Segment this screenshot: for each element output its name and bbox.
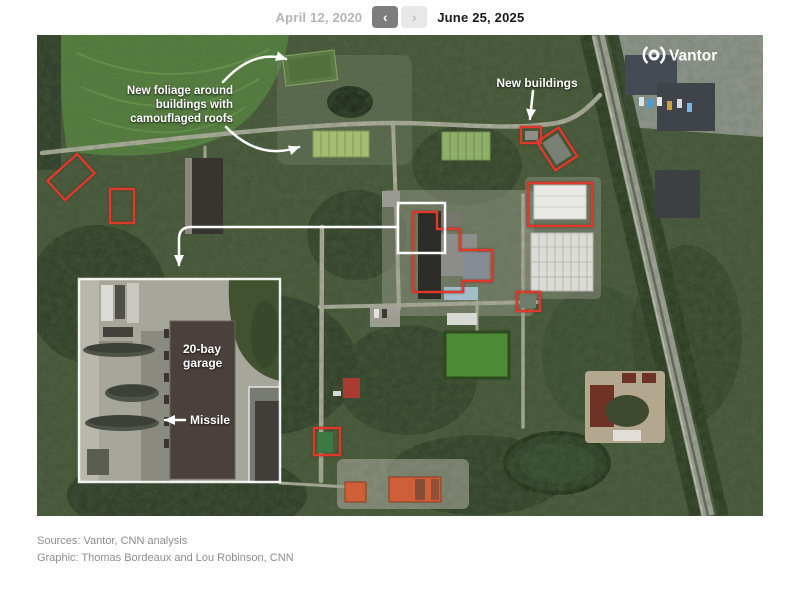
vantor-brand-text: Vantor	[669, 48, 717, 65]
satellite-map-svg: New foliage around buildings with camouf…	[37, 35, 763, 516]
date-toggle-header: April 12, 2020 ‹ › June 25, 2025	[0, 0, 800, 34]
graphic-credit-line: Graphic: Thomas Bordeaux and Lou Robinso…	[37, 550, 294, 567]
foliage-label-line1: New foliage around	[127, 85, 233, 97]
garage-label-line2: garage	[183, 356, 223, 370]
new-buildings-label: New buildings	[496, 76, 578, 90]
date-after-label: June 25, 2025	[437, 10, 524, 25]
date-before-label: April 12, 2020	[276, 10, 363, 25]
chevron-left-icon: ‹	[383, 9, 388, 25]
sources-line: Sources: Vantor, CNN analysis	[37, 533, 294, 550]
foliage-label-line3: camouflaged roofs	[130, 113, 233, 125]
prev-date-button[interactable]: ‹	[372, 6, 398, 28]
footer-credits: Sources: Vantor, CNN analysis Graphic: T…	[37, 533, 294, 567]
chevron-right-icon: ›	[412, 9, 417, 25]
page: April 12, 2020 ‹ › June 25, 2025	[0, 0, 800, 590]
next-date-button[interactable]: ›	[401, 6, 427, 28]
garage-label-line1: 20-bay	[183, 342, 221, 356]
missile-label: Missile	[190, 413, 230, 427]
date-nav: ‹ ›	[372, 6, 427, 28]
inset-magnified-view	[79, 279, 280, 482]
satellite-image: New foliage around buildings with camouf…	[37, 35, 763, 516]
foliage-label-line2: buildings with	[156, 99, 233, 111]
